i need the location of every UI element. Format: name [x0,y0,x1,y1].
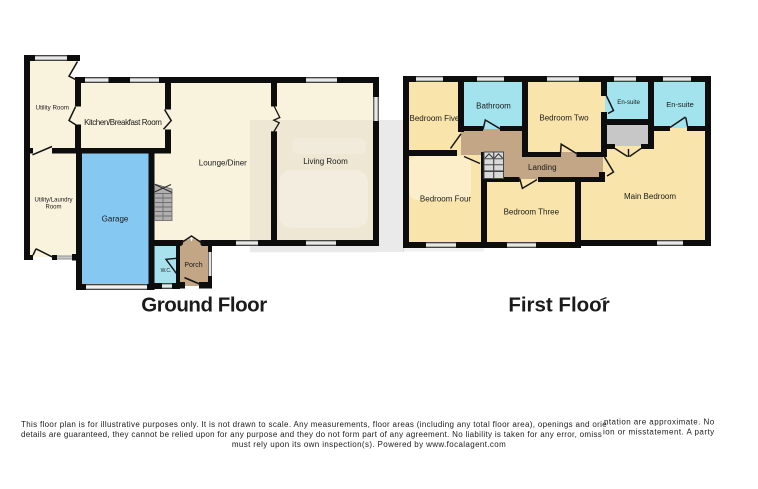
svg-text:Main Bedroom: Main Bedroom [624,192,676,201]
svg-text:W.C.: W.C. [161,268,172,274]
svg-text:Utility/Laundry: Utility/Laundry [34,198,72,204]
svg-text:First Floor: First Floor [508,294,609,317]
svg-text:Landing: Landing [528,163,556,172]
svg-text:En-suite: En-suite [617,99,640,106]
svg-text:ion or misstatement. A party: ion or misstatement. A party [603,428,715,437]
svg-text:details are guaranteed, they c: details are guaranteed, they cannot be r… [21,430,602,439]
svg-text:Bedroom Three: Bedroom Three [504,208,560,217]
svg-text:Bedroom Two: Bedroom Two [539,114,589,123]
svg-text:ntation are approximate. No: ntation are approximate. No [604,418,715,427]
svg-text:Garage: Garage [102,215,129,224]
svg-text:Porch: Porch [184,262,202,269]
svg-text:Bedroom Four: Bedroom Four [420,195,471,204]
svg-text:En-suite: En-suite [666,100,694,109]
svg-text:must rely upon its own inspect: must rely upon its own inspection(s). Po… [232,440,506,449]
svg-text:Utility Room: Utility Room [36,105,69,112]
svg-text:This floor plan is for illustr: This floor plan is for illustrative purp… [21,420,607,429]
svg-text:Kitchen/Breakfast Room: Kitchen/Breakfast Room [84,118,162,127]
svg-text:Bathroom: Bathroom [476,102,511,111]
svg-text:Room: Room [45,205,61,211]
svg-text:Bedroom Five: Bedroom Five [410,114,460,123]
svg-text:Lounge/Diner: Lounge/Diner [199,159,247,168]
svg-text:Living Room: Living Room [303,157,348,166]
svg-text:Ground Floor: Ground Floor [141,294,267,317]
